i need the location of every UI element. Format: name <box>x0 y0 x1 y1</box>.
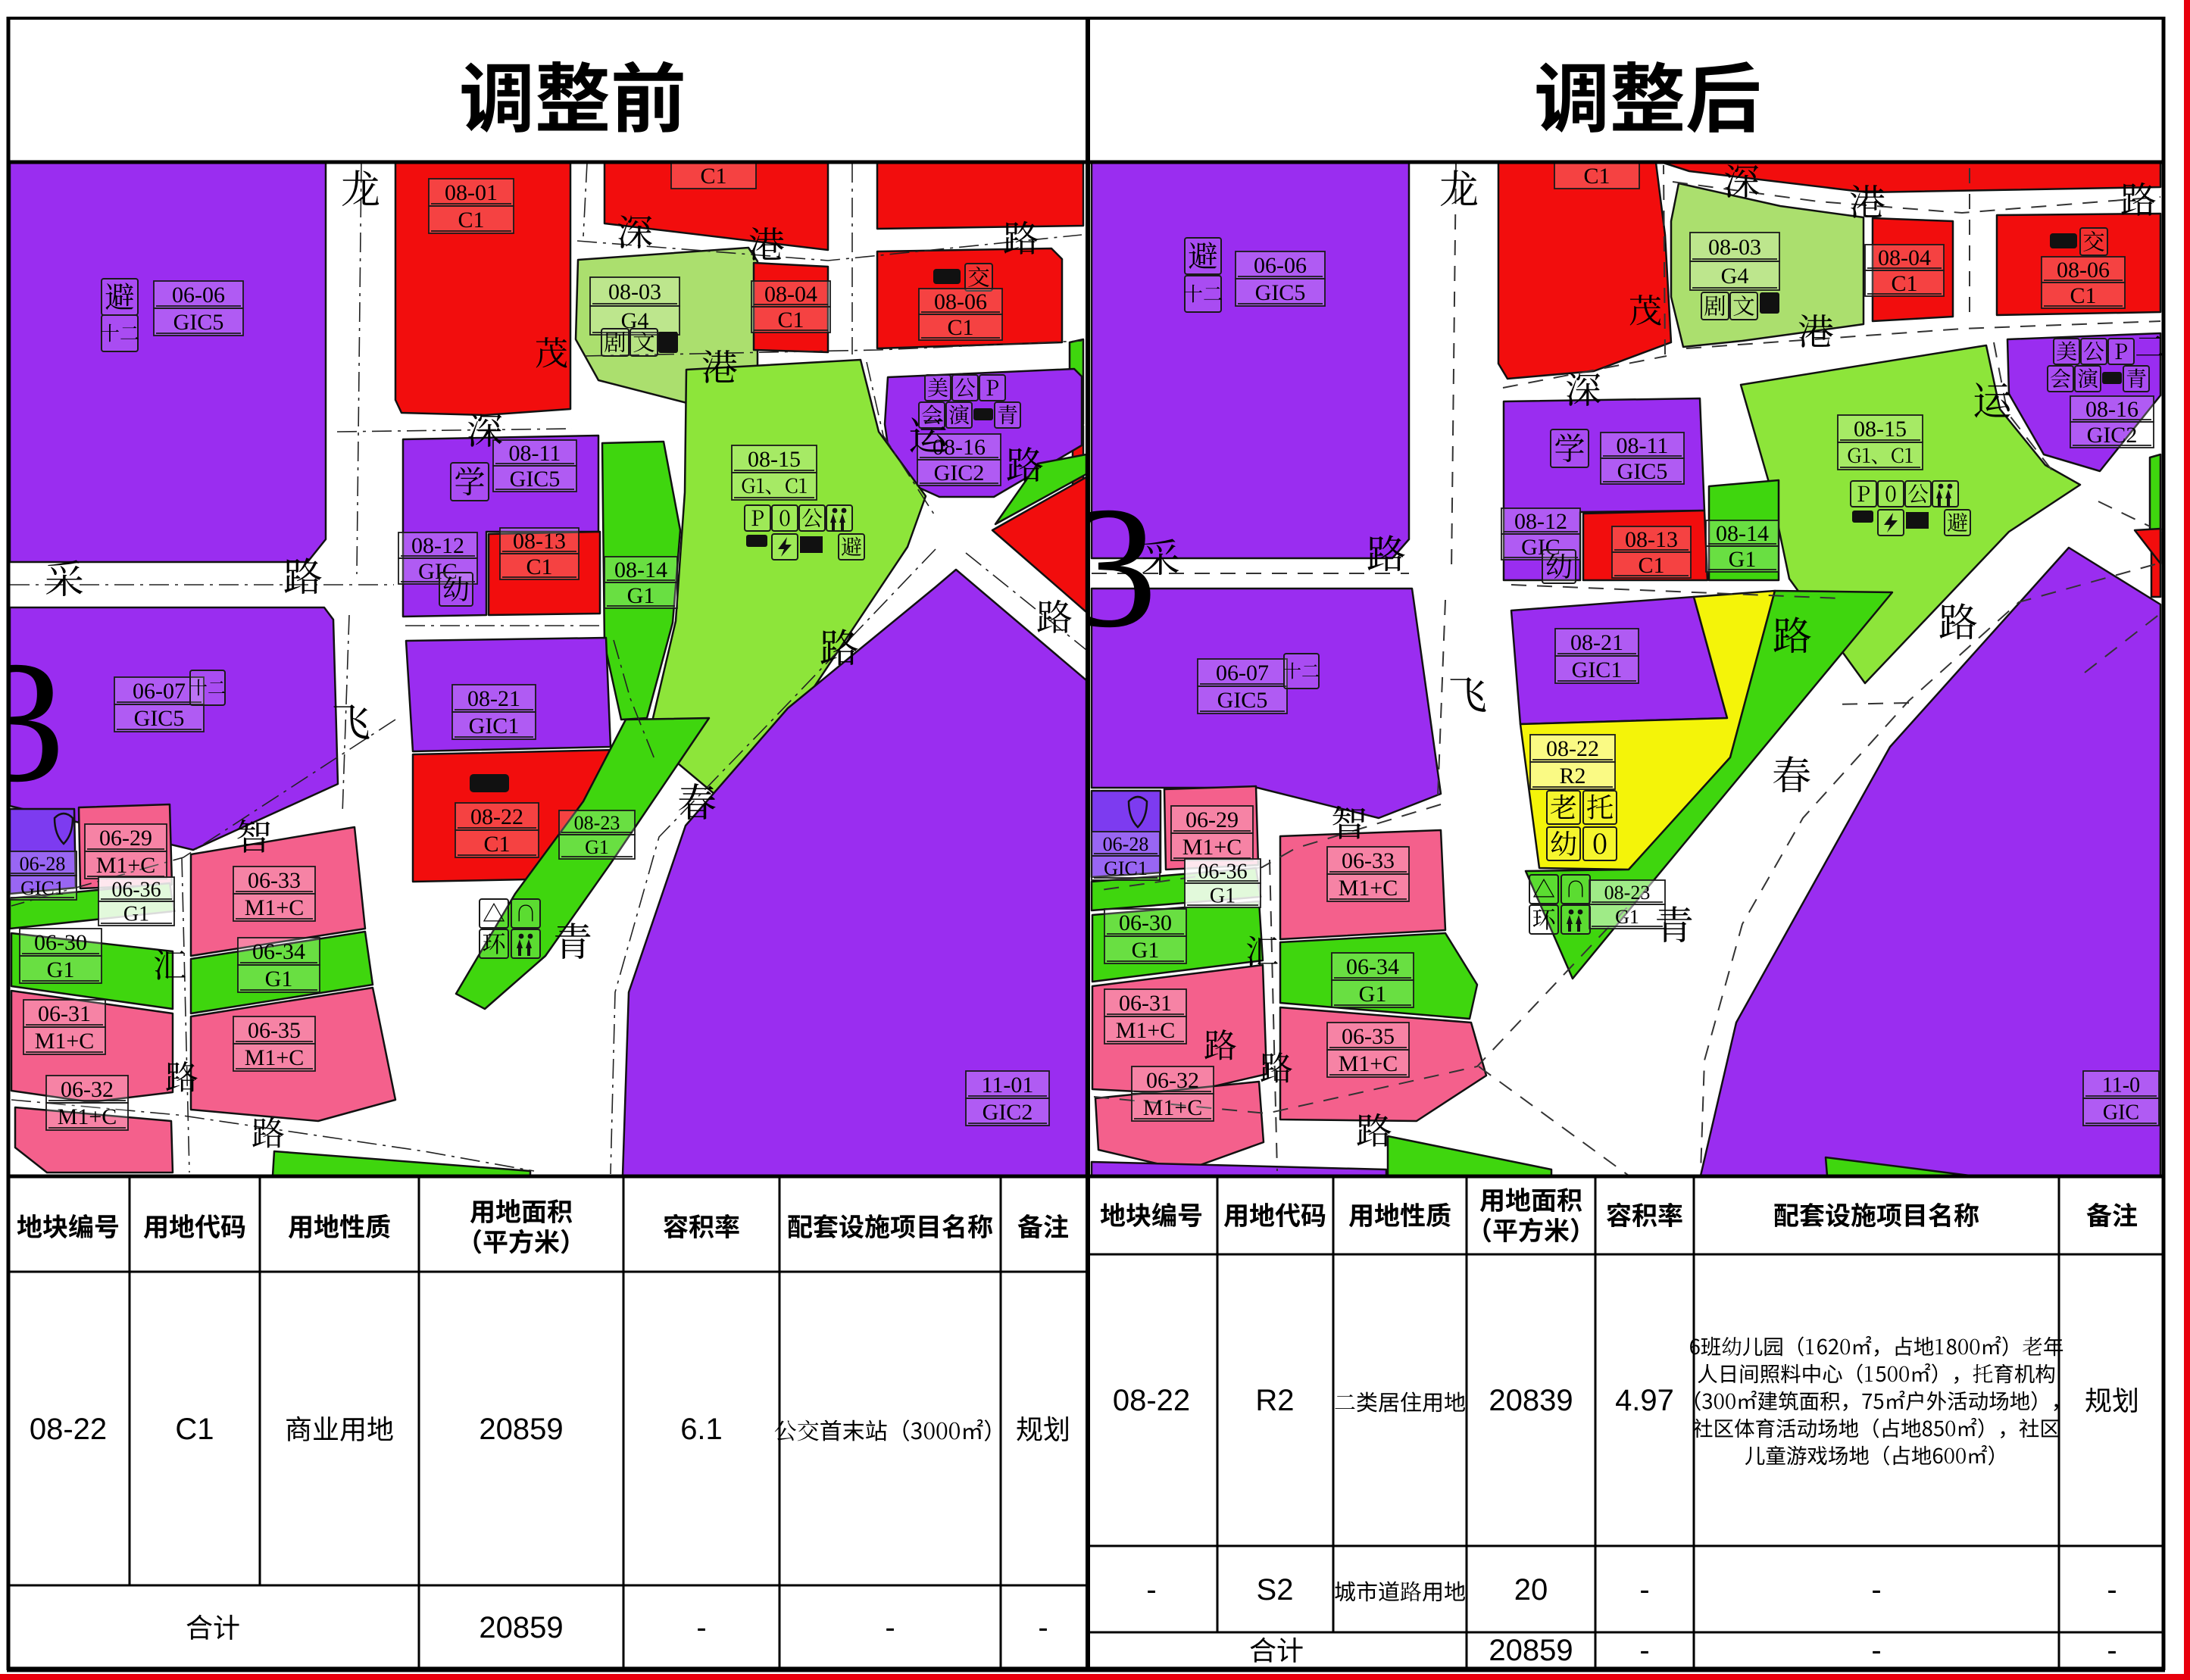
svg-text:06-28: 06-28 <box>20 853 66 875</box>
svg-text:6.1: 6.1 <box>680 1413 723 1446</box>
svg-text:08-04: 08-04 <box>1878 245 1931 270</box>
svg-text:M1+C: M1+C <box>245 1045 305 1070</box>
svg-text:20859: 20859 <box>479 1413 563 1446</box>
svg-text:08-22: 08-22 <box>1546 736 1599 761</box>
svg-text:08-04: 08-04 <box>764 282 817 307</box>
svg-text:-: - <box>2107 1634 2117 1667</box>
svg-text:06-34: 06-34 <box>252 939 305 964</box>
svg-text:08-06: 08-06 <box>934 289 987 314</box>
svg-text:G1: G1 <box>1359 982 1387 1007</box>
svg-text:06-31: 06-31 <box>1119 991 1172 1016</box>
svg-text:GIC2: GIC2 <box>2087 423 2138 448</box>
svg-text:-: - <box>1639 1573 1649 1607</box>
svg-text:C1: C1 <box>700 164 726 189</box>
svg-text:GIC2: GIC2 <box>934 461 985 486</box>
svg-text:08-15: 08-15 <box>1854 417 1907 442</box>
svg-text:08-23: 08-23 <box>574 812 620 834</box>
svg-text:G1: G1 <box>1210 885 1236 908</box>
svg-text:-: - <box>1871 1634 1881 1667</box>
svg-text:08-13: 08-13 <box>513 529 566 554</box>
svg-text:C1: C1 <box>947 315 973 340</box>
svg-text:08-11: 08-11 <box>1617 433 1669 458</box>
svg-text:08-12: 08-12 <box>411 533 464 558</box>
svg-text:06-07: 06-07 <box>1216 660 1269 685</box>
svg-text:GIC5: GIC5 <box>1617 459 1668 484</box>
svg-text:S2: S2 <box>1257 1573 1294 1607</box>
svg-text:G1: G1 <box>585 836 609 858</box>
svg-text:C1: C1 <box>458 208 484 233</box>
svg-text:-: - <box>1639 1634 1649 1667</box>
svg-text:20859: 20859 <box>479 1611 563 1644</box>
svg-text:20859: 20859 <box>1489 1634 1573 1667</box>
svg-text:08-06: 08-06 <box>2057 258 2110 283</box>
svg-text:G1: G1 <box>123 903 149 926</box>
svg-text:20839: 20839 <box>1489 1384 1573 1417</box>
svg-text:G1: G1 <box>1615 906 1639 928</box>
svg-text:06-33: 06-33 <box>248 868 301 893</box>
svg-text:08-21: 08-21 <box>467 686 520 711</box>
svg-text:C1: C1 <box>777 308 804 333</box>
svg-text:06-36: 06-36 <box>111 879 161 902</box>
svg-text:R2: R2 <box>1255 1384 1294 1417</box>
svg-text:GIC1: GIC1 <box>1572 657 1623 682</box>
svg-text:GIC2: GIC2 <box>983 1100 1033 1125</box>
svg-text:R2: R2 <box>1559 763 1585 788</box>
svg-text:G4: G4 <box>1721 264 1749 289</box>
svg-text:M1+C: M1+C <box>35 1029 95 1054</box>
svg-text:GIC1: GIC1 <box>469 714 520 739</box>
svg-text:M1+C: M1+C <box>1143 1095 1203 1120</box>
svg-text:C1: C1 <box>1583 164 1610 189</box>
svg-text:-: - <box>1038 1611 1048 1644</box>
svg-text:06-33: 06-33 <box>1342 848 1395 873</box>
svg-text:G1: G1 <box>1729 547 1757 572</box>
svg-text:06-07: 06-07 <box>133 679 186 704</box>
svg-text:GIC5: GIC5 <box>1217 688 1268 713</box>
svg-text:06-30: 06-30 <box>1119 910 1172 935</box>
svg-text:08-22: 08-22 <box>470 804 523 829</box>
svg-text:06-29: 06-29 <box>1186 807 1239 832</box>
svg-text:06-35: 06-35 <box>1342 1024 1395 1049</box>
svg-text:06-35: 06-35 <box>248 1018 301 1043</box>
svg-text:08-12: 08-12 <box>1514 509 1567 534</box>
svg-text:4.97: 4.97 <box>1615 1384 1674 1417</box>
svg-text:GIC5: GIC5 <box>173 310 224 335</box>
svg-text:08-11: 08-11 <box>509 441 561 466</box>
svg-text:08-03: 08-03 <box>1708 235 1761 260</box>
svg-text:GIC5: GIC5 <box>134 706 185 731</box>
svg-text:C1: C1 <box>526 554 552 579</box>
svg-text:G1: G1 <box>265 966 293 991</box>
svg-text:06-06: 06-06 <box>172 283 225 308</box>
svg-text:GIC5: GIC5 <box>510 467 561 492</box>
svg-text:C1: C1 <box>2070 283 2096 308</box>
svg-text:G1: G1 <box>47 957 75 982</box>
svg-text:-: - <box>696 1611 706 1644</box>
svg-text:08-21: 08-21 <box>1570 630 1623 655</box>
svg-text:M1+C: M1+C <box>1339 876 1398 901</box>
svg-text:C1: C1 <box>1638 553 1664 578</box>
svg-text:08-16: 08-16 <box>2085 397 2138 422</box>
svg-text:G1: G1 <box>627 583 655 608</box>
svg-text:G1: G1 <box>1132 938 1160 963</box>
svg-text:06-29: 06-29 <box>99 826 152 851</box>
svg-text:M1+C: M1+C <box>96 853 156 878</box>
svg-text:M1+C: M1+C <box>58 1104 117 1129</box>
svg-text:C1: C1 <box>175 1413 214 1446</box>
svg-text:M1+C: M1+C <box>245 895 305 920</box>
svg-text:M1+C: M1+C <box>1182 835 1242 860</box>
svg-text:M1+C: M1+C <box>1116 1018 1176 1043</box>
svg-text:GIC5: GIC5 <box>1255 280 1306 305</box>
svg-text:-: - <box>885 1611 895 1644</box>
svg-text:08-22: 08-22 <box>1113 1384 1190 1417</box>
svg-text:20: 20 <box>1514 1573 1548 1607</box>
svg-text:06-32: 06-32 <box>61 1077 114 1102</box>
svg-text:GIC1: GIC1 <box>1104 857 1148 879</box>
svg-text:06-06: 06-06 <box>1254 253 1307 278</box>
svg-text:M1+C: M1+C <box>1339 1051 1398 1076</box>
svg-text:11-01: 11-01 <box>982 1073 1034 1098</box>
svg-text:06-32: 06-32 <box>1146 1068 1199 1093</box>
svg-text:GIC1: GIC1 <box>20 877 64 899</box>
svg-text:08-23: 08-23 <box>1604 882 1651 904</box>
svg-text:08-15: 08-15 <box>748 447 801 472</box>
svg-text:08-01: 08-01 <box>445 180 498 205</box>
svg-text:06-34: 06-34 <box>1346 954 1399 979</box>
svg-text:C1: C1 <box>483 832 510 857</box>
svg-text:06-28: 06-28 <box>1103 833 1149 855</box>
svg-text:GIC: GIC <box>2103 1101 2139 1125</box>
svg-text:-: - <box>1146 1573 1156 1607</box>
svg-text:08-03: 08-03 <box>608 279 661 304</box>
svg-text:08-22: 08-22 <box>30 1413 107 1446</box>
svg-text:08-14: 08-14 <box>1716 521 1769 546</box>
svg-text:06-36: 06-36 <box>1198 860 1247 884</box>
svg-text:08-14: 08-14 <box>614 557 667 582</box>
svg-text:-: - <box>1871 1573 1881 1607</box>
svg-text:08-13: 08-13 <box>1625 527 1678 552</box>
svg-text:-: - <box>2107 1573 2117 1607</box>
svg-text:06-31: 06-31 <box>38 1001 91 1026</box>
svg-text:11-0: 11-0 <box>2102 1074 2140 1098</box>
svg-text:C1: C1 <box>1891 271 1917 296</box>
svg-text:06-30: 06-30 <box>34 930 87 955</box>
